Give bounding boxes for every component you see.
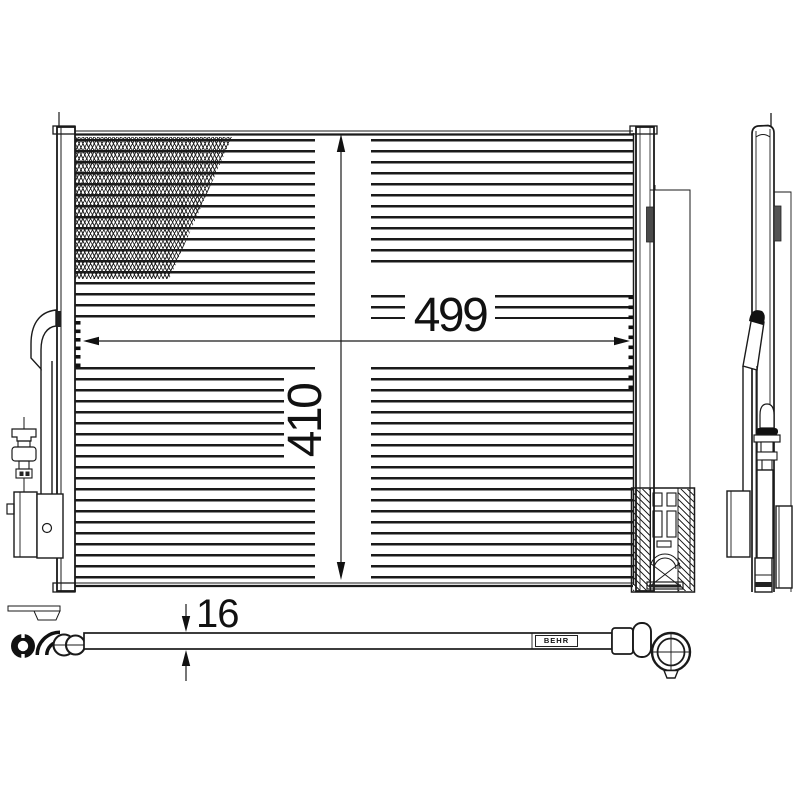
height-dimension-label: 410 [284, 376, 328, 466]
width-dimension [83, 337, 630, 345]
side-profile-view [727, 113, 792, 592]
front-view-core [75, 131, 633, 586]
mounting-bracket-outline [650, 185, 690, 589]
tube-end-dots [76, 296, 634, 390]
height-dimension [337, 134, 345, 580]
width-dimension-label: 499 [405, 294, 495, 338]
tank-mount-pad [647, 207, 654, 242]
thickness-dimension-label: 16 [196, 596, 256, 632]
condenser-technical-drawing: 499 410 16 BEHR [0, 0, 800, 800]
pipe-ring-fitting [651, 632, 691, 678]
condenser-profile-bar [84, 633, 612, 649]
receiver-drier-section [632, 488, 695, 592]
drawing-linework [0, 0, 800, 800]
side-mount-pad [774, 206, 781, 241]
service-valve-fittings [7, 417, 63, 558]
bottom-profile-view [8, 606, 691, 678]
brand-stamp: BEHR [535, 635, 578, 647]
